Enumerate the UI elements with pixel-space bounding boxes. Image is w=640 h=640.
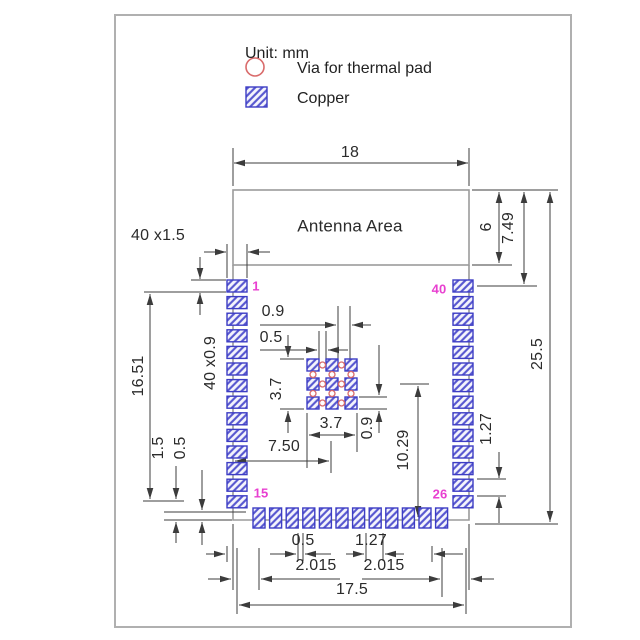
copper-pad [227,396,247,408]
thermal-via [348,391,354,397]
copper-pad [227,429,247,441]
copper-pad [453,496,473,508]
copper-pad [386,508,398,528]
copper-pad [453,330,473,342]
thermal-via [348,372,354,378]
thermal-pad-segment [326,359,338,371]
thermal-via [339,400,345,406]
footprint-drawing: Unit: mm Via for thermal pad Copper 18 A… [0,0,640,640]
module-outline [233,190,469,520]
dim-right-7-49: 7.49 [501,212,517,244]
bottom-pad-row [253,508,448,528]
dim-bot-17-5: 17.5 [336,582,368,598]
dim-pad-0-9-v: 0.9 [360,417,376,440]
dim-bot-2-015-right: 2.015 [363,558,404,574]
antenna-area-label: Antenna Area [297,218,402,235]
copper-pad [353,508,365,528]
copper-pad [227,446,247,458]
thermal-pad-segment [345,397,357,409]
copper-pad [453,346,473,358]
dim-right-1-27: 1.27 [479,413,495,445]
copper-pad [227,463,247,475]
thermal-via [320,400,326,406]
copper-pad [453,429,473,441]
dim-left-0-5: 0.5 [173,437,189,460]
thermal-via [320,362,326,368]
thermal-via [329,372,335,378]
copper-legend-icon [246,87,267,107]
thermal-pad-segment [326,378,338,390]
pin-number-40: 40 [432,283,447,296]
thermal-via [320,381,326,387]
copper-pad [453,313,473,325]
copper-pad [303,508,315,528]
dim-bot-1-27: 1.27 [355,533,387,549]
copper-pad [453,396,473,408]
pin-number-26: 26 [433,488,448,501]
copper-pad [227,313,247,325]
copper-pad [286,508,298,528]
dim-top-width: 18 [341,145,359,161]
copper-pad [436,508,448,528]
thermal-via [339,381,345,387]
thermal-pad-segment [326,397,338,409]
copper-pad [369,508,381,528]
dim-right-25-5: 25.5 [530,338,546,370]
copper-pad [453,363,473,375]
copper-pad [227,363,247,375]
thermal-pad-segment [307,378,319,390]
copper-pad [227,496,247,508]
dim-bot-2-015-left: 2.015 [295,558,336,574]
dim-mid-10-29: 10.29 [396,429,412,470]
copper-pad [453,446,473,458]
right-pad-column [453,280,473,508]
dim-mid-0-9: 0.9 [262,304,285,320]
copper-pad [453,380,473,392]
thermal-via [329,391,335,397]
thermal-via [310,391,316,397]
copper-pad [453,280,473,292]
copper-pad [453,413,473,425]
dim-left-40x0-9: 40 x0.9 [203,336,219,390]
copper-pad [453,297,473,309]
copper-pad [227,280,247,292]
via-legend-label: Via for thermal pad [297,59,432,78]
copper-pad [253,508,265,528]
dim-mid-7-50: 7.50 [268,439,300,455]
copper-pad [402,508,414,528]
thermal-via [310,372,316,378]
left-pad-column [227,280,247,508]
copper-pad [227,413,247,425]
dim-right-6: 6 [479,222,495,231]
thermal-pad-segment [307,359,319,371]
copper-pad [419,508,431,528]
copper-pad [227,346,247,358]
copper-pad [453,479,473,491]
copper-pad [453,463,473,475]
copper-pad [227,330,247,342]
pin-number-1: 1 [252,280,259,293]
copper-pad [227,297,247,309]
dim-pad-3-7-v: 3.7 [269,378,285,401]
copper-pad [227,380,247,392]
dim-pad-3-7-h: 3.7 [320,416,343,432]
dim-left-16-51: 16.51 [131,355,147,396]
thermal-pad-grid [307,359,357,409]
thermal-pad-segment [307,397,319,409]
thermal-via [339,362,345,368]
copper-pad [319,508,331,528]
thermal-pad-segment [345,378,357,390]
pin-number-15: 15 [254,487,269,500]
dim-left-1-5: 1.5 [151,437,167,460]
dim-mid-0-5: 0.5 [260,330,283,346]
copper-pad [227,479,247,491]
dim-left-40x1-5: 40 x1.5 [131,228,185,244]
copper-legend-label: Copper [297,89,349,108]
thermal-pad-segment [345,359,357,371]
copper-pad [270,508,282,528]
copper-pad [336,508,348,528]
dim-bot-0-5: 0.5 [292,533,315,549]
